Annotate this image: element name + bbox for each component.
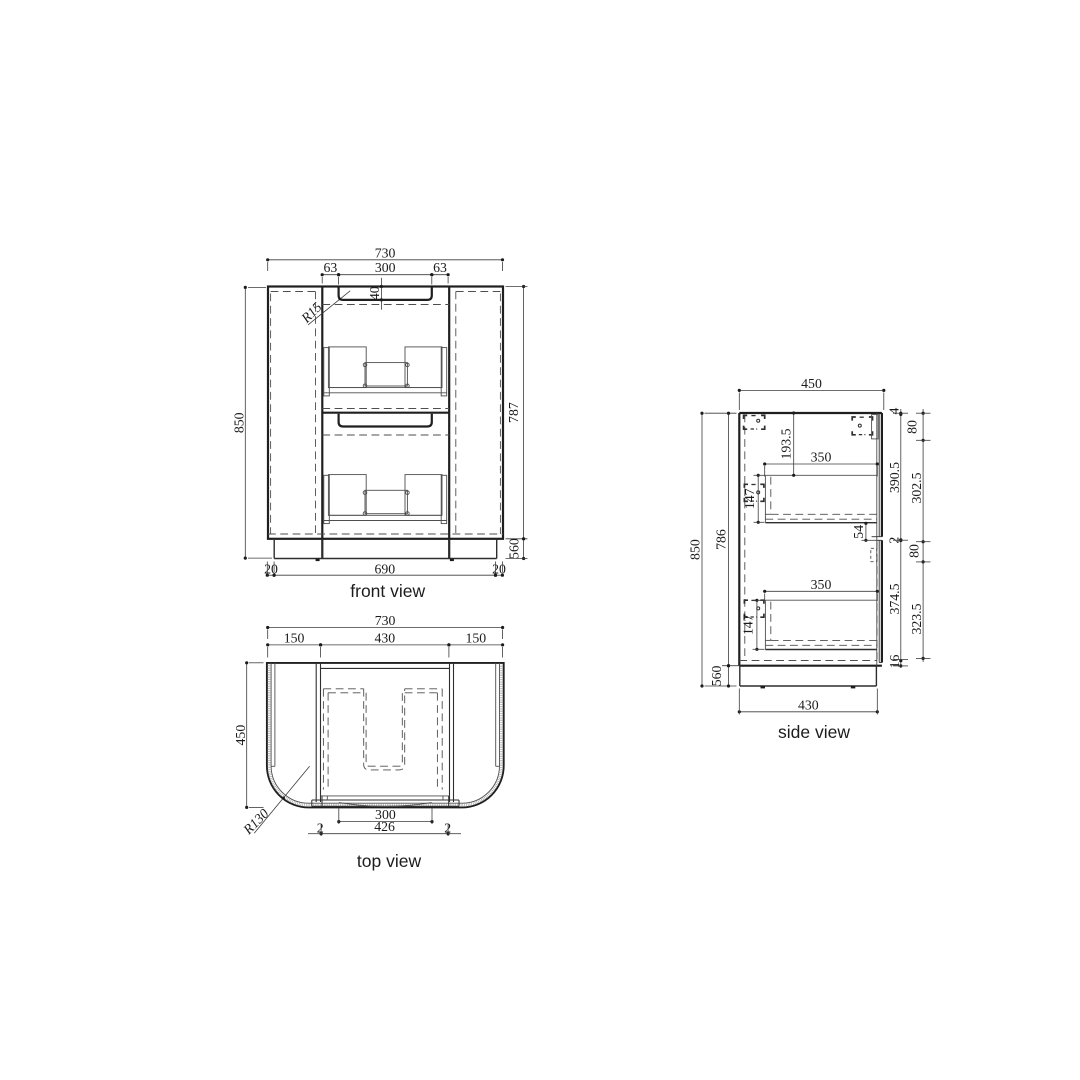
svg-text:730: 730	[375, 613, 396, 628]
svg-text:302.5: 302.5	[909, 472, 924, 503]
svg-text:147: 147	[741, 614, 756, 635]
svg-text:450: 450	[233, 725, 248, 746]
svg-text:323.5: 323.5	[909, 603, 924, 634]
svg-text:300: 300	[375, 260, 396, 275]
svg-text:80: 80	[905, 420, 920, 434]
svg-text:850: 850	[688, 539, 703, 560]
svg-text:350: 350	[811, 577, 832, 592]
svg-text:560: 560	[507, 538, 522, 559]
svg-text:426: 426	[374, 819, 395, 834]
svg-text:147: 147	[742, 488, 757, 509]
svg-text:787: 787	[506, 402, 521, 423]
svg-text:430: 430	[798, 697, 819, 712]
svg-text:390.5: 390.5	[887, 462, 902, 493]
svg-text:450: 450	[801, 376, 822, 391]
svg-text:40: 40	[367, 286, 382, 300]
svg-text:16: 16	[887, 655, 902, 669]
svg-text:20: 20	[264, 562, 278, 577]
svg-text:20: 20	[492, 562, 506, 577]
svg-text:193.5: 193.5	[779, 428, 794, 459]
svg-text:850: 850	[232, 412, 247, 433]
svg-text:63: 63	[433, 260, 447, 275]
svg-text:side view: side view	[778, 722, 850, 742]
svg-text:690: 690	[374, 562, 395, 577]
svg-text:350: 350	[811, 450, 832, 465]
svg-text:150: 150	[284, 630, 305, 645]
svg-text:374.5: 374.5	[887, 583, 902, 614]
svg-text:80: 80	[907, 544, 922, 558]
svg-text:730: 730	[375, 245, 396, 260]
svg-text:top view: top view	[357, 851, 422, 871]
svg-text:560: 560	[709, 665, 724, 686]
svg-text:786: 786	[714, 529, 729, 550]
svg-text:2: 2	[317, 820, 324, 835]
svg-text:150: 150	[465, 630, 486, 645]
svg-text:front view: front view	[350, 581, 425, 601]
svg-text:54: 54	[851, 525, 866, 539]
svg-text:63: 63	[324, 260, 338, 275]
svg-text:430: 430	[374, 630, 395, 645]
